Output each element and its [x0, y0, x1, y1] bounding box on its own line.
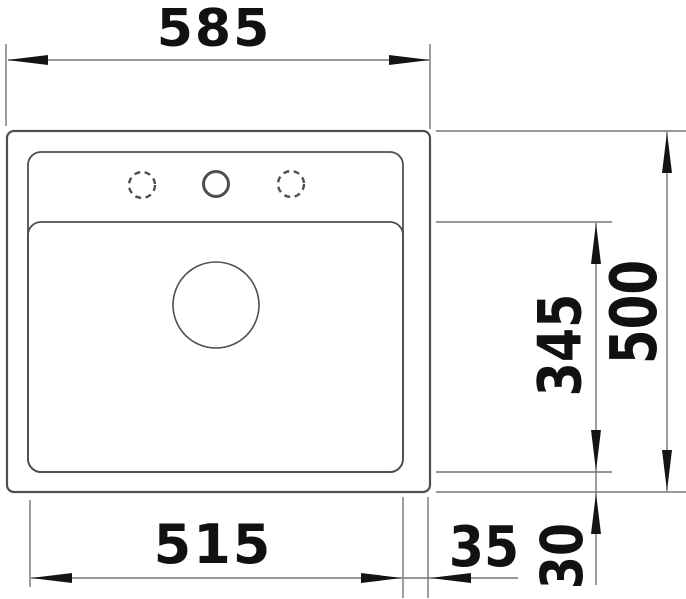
dim-label-bowl-front-offset: 30: [528, 523, 596, 589]
arrow-345-top: [591, 223, 601, 264]
drain-hole-icon: [173, 262, 259, 348]
sink-outline: [7, 131, 430, 492]
dim-label-bowl-depth: 345: [525, 294, 595, 397]
sink-rim-inner-edge: [28, 152, 403, 472]
sink-bowl-edge: [28, 222, 403, 472]
sink-outer-edge: [7, 131, 430, 492]
arrow-585-right: [389, 55, 430, 65]
drawing-canvas: 585 515 35 345 500 30: [0, 0, 686, 599]
dim-label-overall-width: 585: [157, 0, 272, 59]
arrow-515-left: [31, 573, 72, 583]
dim-label-overall-depth: 500: [597, 260, 672, 364]
sink-dimension-drawing: 585 515 35 345 500 30: [0, 0, 686, 599]
arrow-500-top: [662, 132, 672, 173]
dimension-labels: 585 515 35 345 500 30: [154, 0, 672, 589]
arrow-500-bottom: [662, 450, 672, 491]
tap-hole-right-icon: [278, 171, 304, 197]
arrow-345-bottom: [591, 430, 601, 471]
arrow-515-right: [361, 573, 402, 583]
dim-label-bowl-side-offset: 35: [449, 515, 519, 580]
tap-hole-center-icon: [204, 172, 229, 197]
tap-hole-left-icon: [129, 172, 155, 198]
dim-label-bowl-width: 515: [154, 513, 273, 576]
arrow-585-left: [7, 55, 48, 65]
